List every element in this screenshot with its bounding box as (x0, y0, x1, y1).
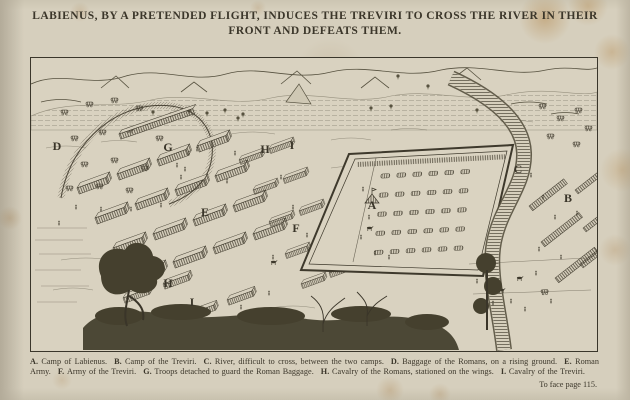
legend-key: C. (204, 357, 215, 366)
map-letter-d: D (53, 140, 62, 152)
legend-entry-f: F. Army of the Treviri. (58, 367, 136, 376)
map-letter-b: B (564, 192, 572, 204)
legend-key: B. (114, 357, 125, 366)
legend-key: A. (30, 357, 41, 366)
map-letter-h: H (163, 277, 172, 289)
legend-key: G. (143, 367, 154, 376)
map-letter-c: C (514, 163, 523, 175)
legend-entry-d: D. Baggage of the Romans, on a rising gr… (391, 357, 557, 366)
legend-entry-a: A. Camp of Labienus. (30, 357, 107, 366)
legend-key: I. (501, 367, 509, 376)
legend-entry-i: I. Cavalry of the Treviri. (501, 367, 585, 376)
legend-key: E. (564, 357, 575, 366)
legend-key: H. (321, 367, 332, 376)
legend-key: D. (391, 357, 402, 366)
page-reference-note: To face page 115. (539, 380, 597, 389)
map-letter-h: H (260, 143, 269, 155)
book-page: { "page": { "title_line1": "LABIENUS, BY… (0, 0, 630, 400)
legend-entry-g: G. Troops detached to guard the Roman Ba… (143, 367, 314, 376)
map-letter-i: I (190, 296, 195, 308)
map-letter-g: G (163, 141, 172, 153)
plate-title-line-1: LABIENUS, BY A PRETENDED FLIGHT, INDUCES… (0, 10, 630, 22)
map-key-legend: A. Camp of Labienus.B. Camp of the Trevi… (30, 357, 599, 378)
map-letter-i: I (290, 139, 295, 151)
engraving-plate: DGHIEFACBHI (30, 57, 598, 352)
legend-entry-h: H. Cavalry of the Romans, stationed on t… (321, 367, 494, 376)
map-letter-a: A (368, 199, 377, 211)
plate-title-line-2: FRONT AND DEFEATS THEM. (0, 25, 630, 37)
legend-entry-c: C. River, difficult to cross, between th… (204, 357, 384, 366)
legend-key: F. (58, 367, 67, 376)
battle-map-engraving (31, 58, 597, 351)
legend-entry-b: B. Camp of the Treviri. (114, 357, 196, 366)
map-letter-e: E (201, 206, 209, 218)
map-letter-f: F (292, 222, 299, 234)
